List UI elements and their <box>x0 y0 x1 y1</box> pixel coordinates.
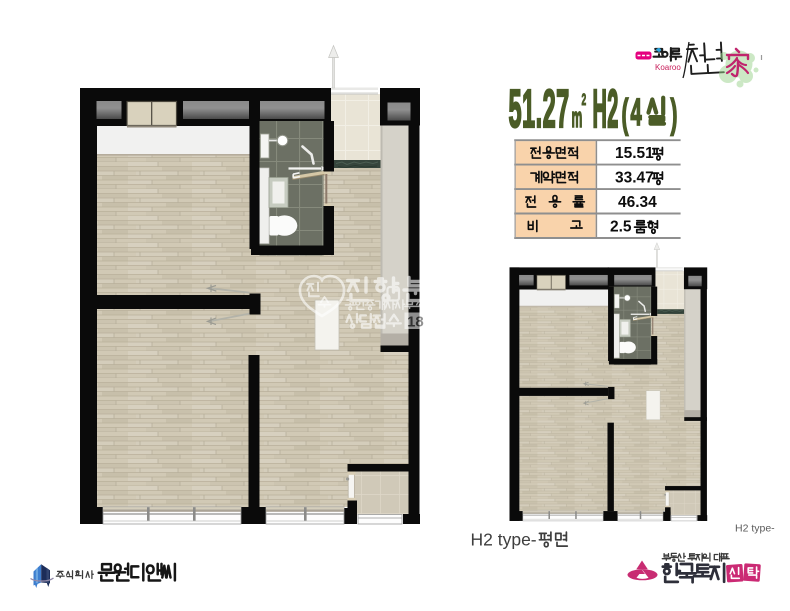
svg-text:15.51: 15.51 <box>615 145 654 162</box>
svg-text:H2 type-: H2 type- <box>735 523 775 535</box>
svg-text:18: 18 <box>407 314 424 331</box>
svg-text:4: 4 <box>631 91 642 133</box>
svg-text:H2 type-: H2 type- <box>471 530 537 550</box>
svg-text:2: 2 <box>582 90 587 109</box>
svg-text:46.34: 46.34 <box>618 194 657 211</box>
svg-text:2.5: 2.5 <box>610 219 632 236</box>
svg-text:Koaroo: Koaroo <box>655 63 681 72</box>
svg-text:(: ( <box>622 91 629 136</box>
svg-text:): ) <box>671 91 678 136</box>
svg-text:m: m <box>572 101 583 134</box>
svg-text:51.27: 51.27 <box>509 79 570 139</box>
svg-text:H2: H2 <box>593 78 619 139</box>
svg-text:33.47: 33.47 <box>615 170 654 187</box>
